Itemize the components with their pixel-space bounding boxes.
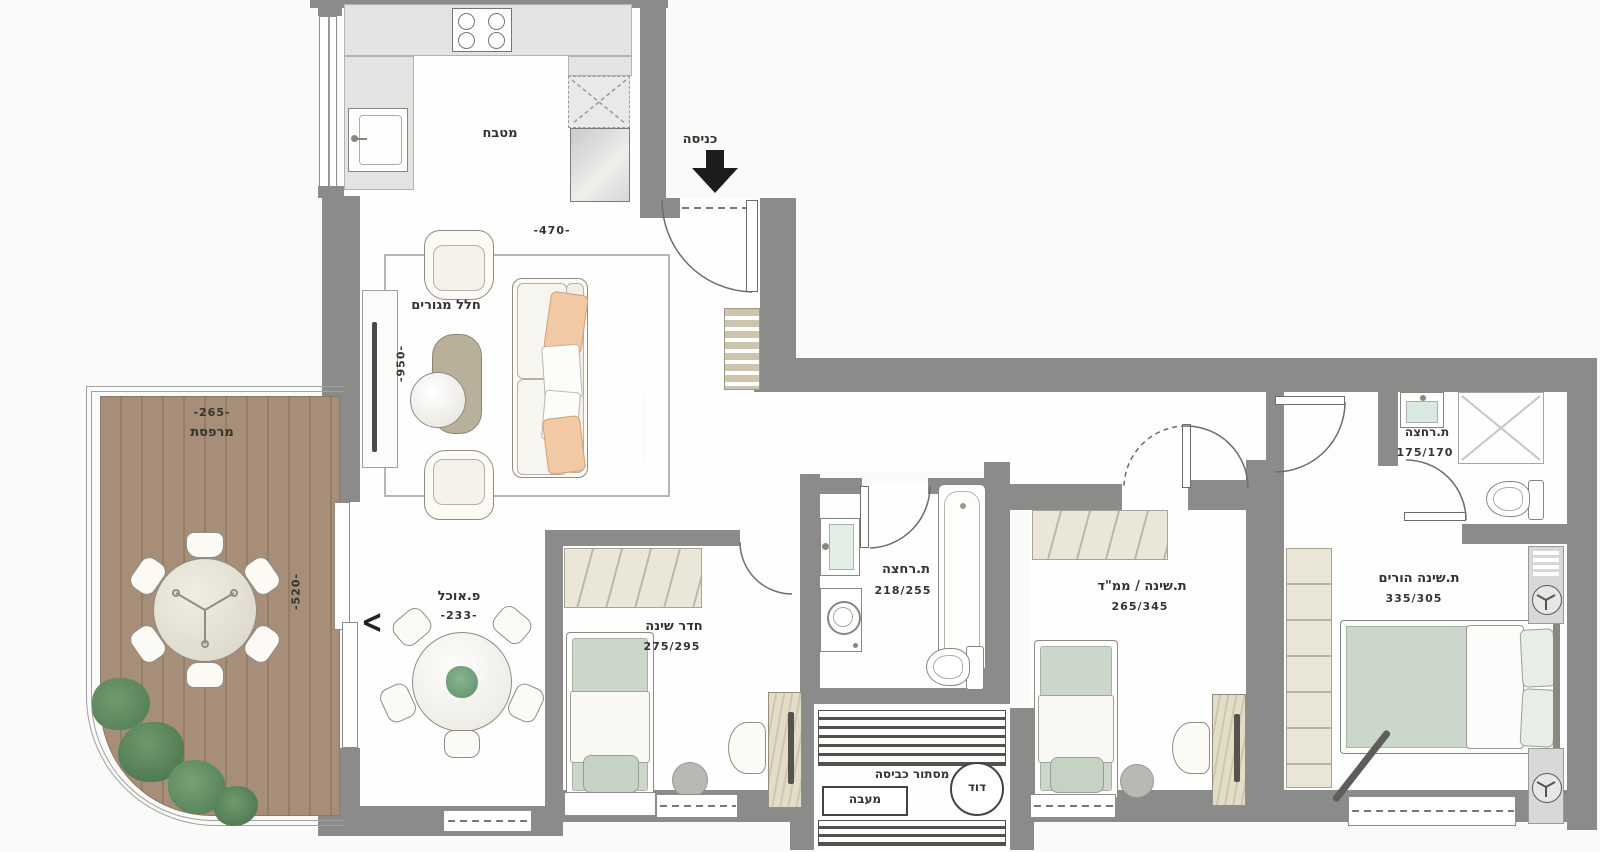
laundry-louvers <box>818 820 1006 846</box>
wall <box>818 478 862 494</box>
burner-icon <box>458 13 475 30</box>
desk-chair <box>728 722 766 774</box>
wall <box>754 358 1597 392</box>
living-label: חלל מגורים <box>386 298 506 313</box>
window <box>564 792 656 816</box>
laundry-louvers <box>818 710 1006 766</box>
dining-label: פ.אוכל <box>399 589 519 604</box>
living-height-dim: -950- <box>395 341 408 387</box>
balcony-height-dim: -520- <box>290 569 303 615</box>
window <box>1348 796 1516 826</box>
tv-cabinet <box>362 290 398 468</box>
kitchen-label: מטבח <box>440 126 560 141</box>
toilet <box>1528 480 1544 520</box>
blanket <box>570 691 650 763</box>
burner-icon <box>488 32 505 49</box>
faucet-icon <box>355 138 367 140</box>
ensuite-door-leaf <box>1404 512 1466 521</box>
monitor-icon <box>1234 714 1240 782</box>
balcony-sliding-door <box>334 502 350 630</box>
kitchen-sink <box>348 108 408 172</box>
monitor-icon <box>788 712 794 784</box>
bedroom1-label: חדר שינה <box>614 619 734 634</box>
fridge <box>570 128 630 202</box>
wall <box>1188 480 1248 510</box>
pouf <box>672 762 708 798</box>
side-table <box>410 372 466 428</box>
wall <box>1008 708 1034 850</box>
duvet <box>1466 625 1524 749</box>
wardrobe <box>1032 510 1168 560</box>
balcony-chair <box>186 532 224 558</box>
entrance-door-leaf <box>746 200 758 292</box>
pillow <box>542 415 587 475</box>
ac-unit <box>1528 748 1564 824</box>
balcony-label: מרפסת <box>162 425 262 440</box>
bathroom-label: ת.רחצה <box>846 562 966 577</box>
ensuite-size: 175/170 <box>1365 446 1485 459</box>
window <box>1030 794 1116 818</box>
faucet-icon <box>822 543 829 550</box>
headboard <box>1553 623 1559 751</box>
slider-direction-icon: < <box>360 604 384 642</box>
mamad-door-leaf <box>1182 424 1191 488</box>
bed-single <box>1034 640 1118 800</box>
wall <box>545 530 740 546</box>
shoe-cabinet <box>724 308 760 390</box>
stove <box>452 8 512 52</box>
faucet-icon <box>1420 395 1426 401</box>
toilet-bowl <box>1486 481 1530 517</box>
wall <box>640 0 666 218</box>
wall <box>984 462 1010 708</box>
dining-dim: -233- <box>419 609 499 622</box>
blanket <box>1038 695 1114 763</box>
fan-icon <box>1532 773 1562 803</box>
kitchen-cabinet-dashed <box>568 76 630 128</box>
living-width-dim: -470- <box>512 224 592 237</box>
desk-chair <box>1172 722 1210 774</box>
master-suite-door-leaf <box>1275 396 1345 405</box>
pillow <box>1520 688 1557 748</box>
bathroom-size: 218/255 <box>843 584 963 597</box>
balcony-sliding-door <box>342 622 358 748</box>
laundry-label: מסתור כביסה <box>852 767 972 781</box>
plant-centerpiece <box>446 666 478 698</box>
wall <box>1462 524 1567 544</box>
kitchen-counter <box>568 56 632 76</box>
bed-double <box>1340 620 1560 754</box>
pillow <box>583 755 639 793</box>
pillow <box>1050 757 1104 793</box>
window <box>656 794 738 818</box>
pillow <box>1520 628 1557 688</box>
window <box>443 810 532 832</box>
ensuite-label: ת.רחצה <box>1367 425 1487 439</box>
toilet-bowl <box>926 648 970 686</box>
ac-unit <box>1528 546 1564 624</box>
ensuite-sink <box>1400 392 1444 428</box>
wall <box>545 530 563 836</box>
wall <box>1008 484 1122 510</box>
condenser-label: מעבה <box>824 792 906 806</box>
drain-icon <box>960 503 966 509</box>
bedroom1-size: 275/295 <box>612 640 732 653</box>
wardrobe <box>564 548 702 608</box>
wall <box>640 198 682 218</box>
sofa <box>512 278 588 478</box>
master-label: ת.שינה הורים <box>1359 571 1479 586</box>
balcony-width-dim: -265- <box>162 406 262 419</box>
floor-plan: < <box>0 0 1600 852</box>
balcony-chair <box>186 662 224 688</box>
wardrobe-tall <box>1286 548 1332 788</box>
entrance-arrow-icon <box>692 150 738 193</box>
entrance-door-opening <box>680 198 754 218</box>
wall <box>1246 460 1284 790</box>
wall <box>318 0 342 16</box>
bathroom-door-leaf <box>860 486 869 548</box>
dining-chair <box>444 730 480 758</box>
boiler-label: דוד <box>952 780 1002 794</box>
burner-icon <box>488 13 505 30</box>
burner-icon <box>458 32 475 49</box>
bathtub <box>938 484 986 672</box>
desk <box>1212 694 1246 806</box>
pouf <box>1120 764 1154 798</box>
armchair <box>424 230 494 300</box>
desk <box>768 692 802 808</box>
wall <box>800 474 820 708</box>
mamad-size: 265/345 <box>1080 600 1200 613</box>
fan-icon <box>1532 585 1562 615</box>
tv-icon <box>372 322 377 452</box>
kitchen-window <box>319 16 337 188</box>
master-size: 335/305 <box>1354 592 1474 605</box>
washing-machine <box>820 588 862 652</box>
entrance-label: כניסה <box>655 132 745 147</box>
armchair <box>424 450 494 520</box>
balcony-table <box>153 558 257 662</box>
mamad-label: ת.שינה / ממ"ד <box>1072 579 1212 594</box>
bed-single <box>566 632 654 800</box>
wall <box>1567 392 1597 830</box>
